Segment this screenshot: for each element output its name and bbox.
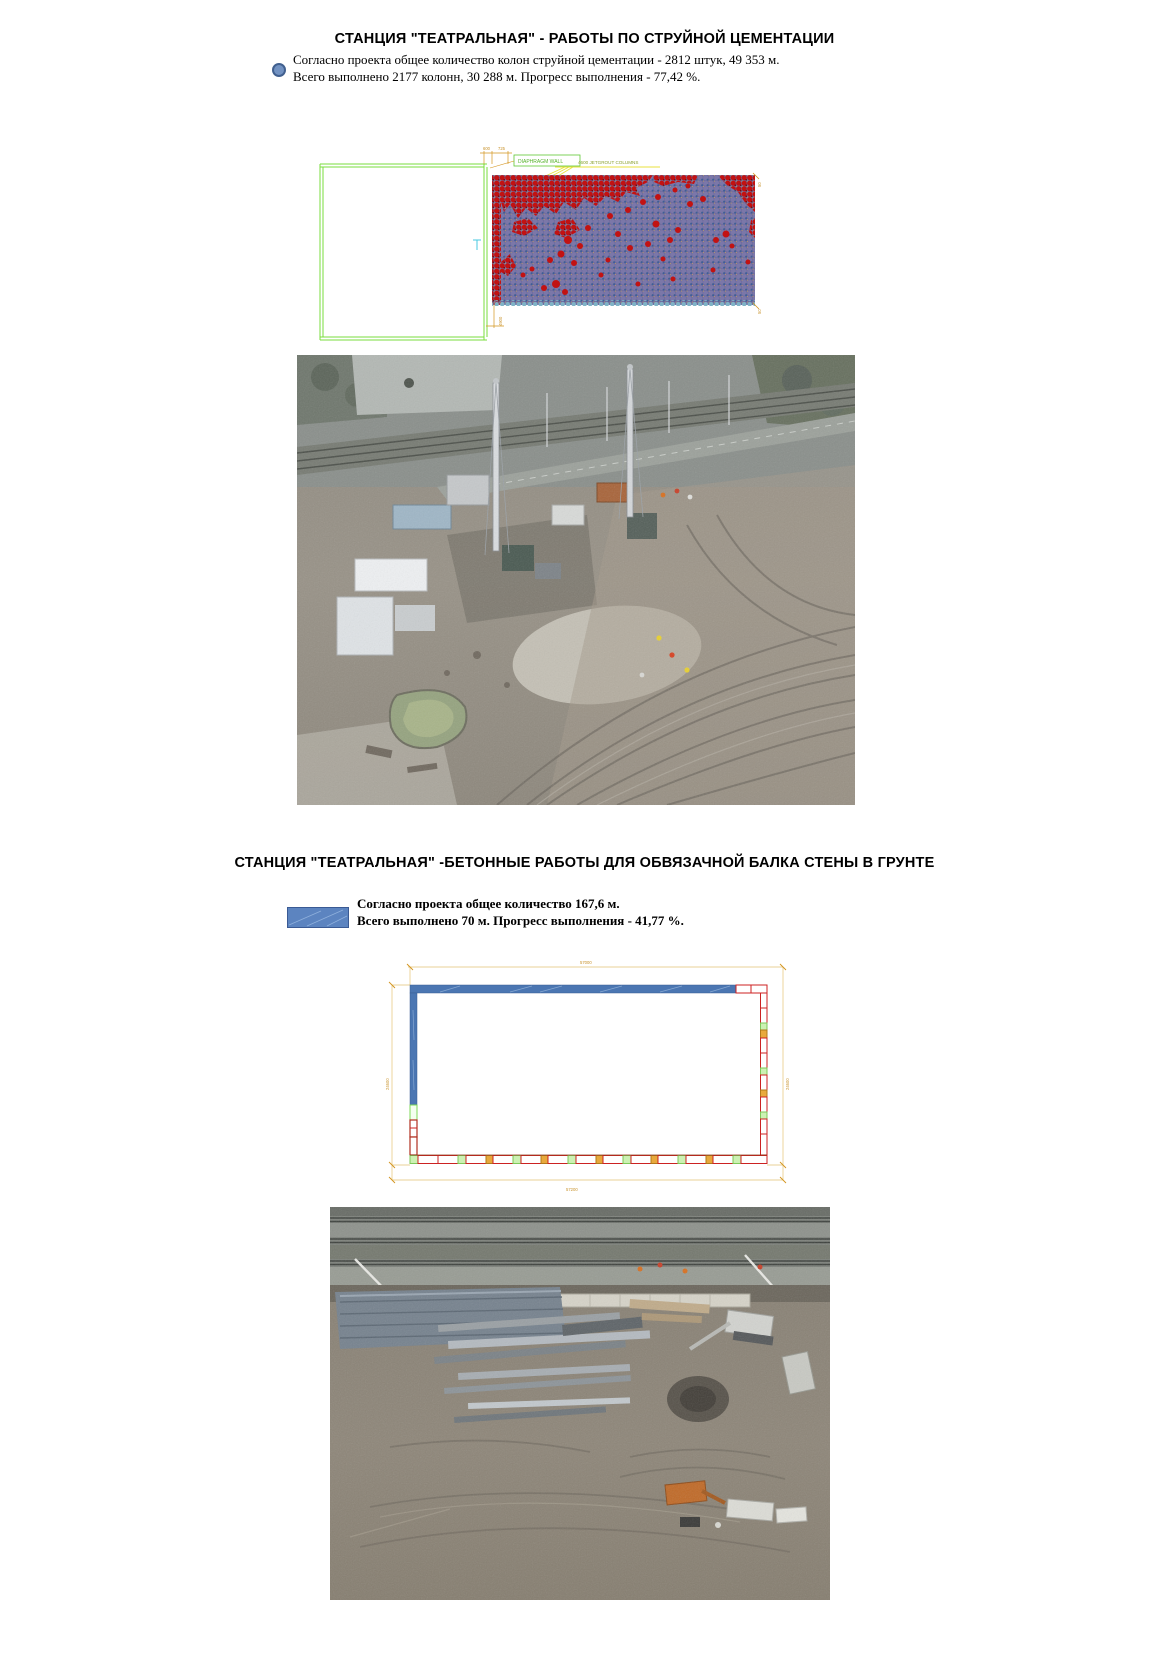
legend-completed-swatch xyxy=(287,907,349,928)
aerial-photo-jet-grouting xyxy=(297,355,855,805)
svg-text:600: 600 xyxy=(483,146,491,151)
bottom-edge-segments xyxy=(410,1155,767,1164)
left-edge-segments xyxy=(410,1105,417,1155)
capping-beam-plan-diagram: 57000 57200 24600 24600 xyxy=(380,950,805,1198)
section2-line2: Всего выполнено 70 м. Прогресс выполнени… xyxy=(357,913,684,929)
bullet-circle-icon xyxy=(272,63,286,77)
section1-line2: Всего выполнено 2177 колонн, 30 288 м. П… xyxy=(293,69,700,85)
svg-text:50: 50 xyxy=(757,309,762,314)
dim-right-label: 24600 xyxy=(785,1078,790,1090)
svg-text:DIAPHRAGM WALL: DIAPHRAGM WALL xyxy=(518,159,563,165)
svg-text:4600 JETGROUT COLUMNS: 4600 JETGROUT COLUMNS xyxy=(578,160,638,165)
section1-line1: Согласно проекта общее количество колон … xyxy=(293,52,779,68)
right-edge-segments xyxy=(761,993,768,1155)
dim-left-label: 24600 xyxy=(385,1078,390,1090)
completed-beam xyxy=(410,985,736,1105)
diaphragm-wall-label: DIAPHRAGM WALL xyxy=(490,155,580,168)
dim-top-label: 57000 xyxy=(580,960,592,965)
station-outline-green xyxy=(320,164,487,340)
aerial-photo-beam-works xyxy=(330,1207,830,1600)
svg-text:4900: 4900 xyxy=(498,316,503,326)
survey-tick xyxy=(473,240,481,250)
report-page: СТАНЦИЯ "ТЕАТРАЛЬНАЯ" - РАБОТЫ ПО СТРУЙН… xyxy=(0,0,1169,1653)
pending-top-right xyxy=(736,985,767,993)
top-dimensions: 600 725 xyxy=(480,146,512,164)
section2-line1: Согласно проекта общее количество 167,6 … xyxy=(357,896,620,912)
svg-text:725: 725 xyxy=(498,146,506,151)
jet-grouting-plan-diagram: 600 725 DIAPHRAGM WALL 4600 JETGROUT COL… xyxy=(318,142,778,347)
dimension-lines xyxy=(389,964,786,1183)
section1-title: СТАНЦИЯ "ТЕАТРАЛЬНАЯ" - РАБОТЫ ПО СТРУЙН… xyxy=(0,31,1169,47)
svg-text:50: 50 xyxy=(757,182,762,187)
bottom-dimension: 4900 xyxy=(486,305,504,328)
edge-row-dots xyxy=(492,300,755,306)
columns-field xyxy=(492,175,755,306)
section2-title: СТАНЦИЯ "ТЕАТРАЛЬНАЯ" -БЕТОННЫЕ РАБОТЫ Д… xyxy=(0,855,1169,871)
dim-bottom-label: 57200 xyxy=(566,1187,578,1192)
